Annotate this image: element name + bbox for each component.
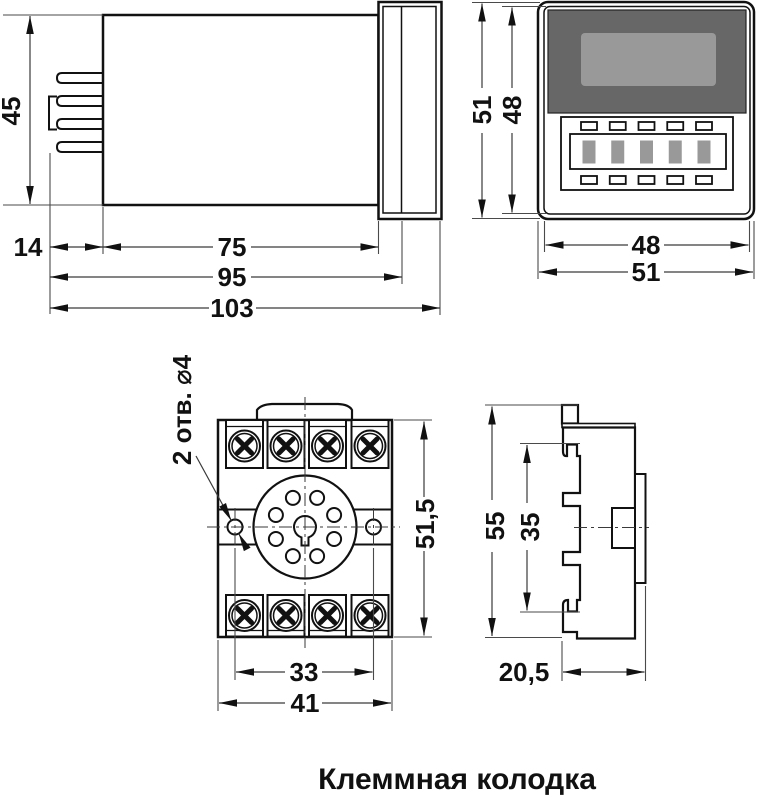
dim-relay-height: 45 <box>0 16 30 204</box>
dim-socket-side-height-label: 55 <box>480 512 510 541</box>
dimensional-drawing: 45 14 75 95 103 <box>0 0 758 800</box>
relay-front-view: 51 48 48 51 <box>467 2 754 287</box>
screw <box>355 431 386 462</box>
screw <box>271 431 302 462</box>
relay-spigot <box>49 97 57 130</box>
dim-front-inner-height: 48 <box>497 8 527 213</box>
dim-relay-front-label: 14 <box>14 232 43 262</box>
dim-socket-hole-span-label: 33 <box>290 657 319 687</box>
dim-front-inner-width: 48 <box>546 230 749 260</box>
relay-pins <box>57 73 103 152</box>
dim-socket-side-inner: 35 <box>515 445 545 611</box>
dim-relay-total-label: 103 <box>210 293 253 323</box>
dim-front-outer-height-label: 51 <box>467 96 497 125</box>
socket-side-top-tab <box>562 405 578 424</box>
dim-front-outer-width: 51 <box>539 257 753 287</box>
dim-relay-body-length: 75 <box>103 232 379 262</box>
relay-body <box>103 15 379 205</box>
dim-relay-front: 14 <box>14 232 103 262</box>
screw <box>355 600 386 631</box>
dim-relay-to-panel-label: 95 <box>218 262 247 292</box>
socket-side-view: 55 35 20,5 <box>480 405 649 687</box>
screw <box>229 431 260 462</box>
relay-bezel-outer <box>379 2 442 219</box>
screw <box>312 431 343 462</box>
dim-socket-side-depth-label: 20,5 <box>499 657 550 687</box>
dim-relay-height-label: 45 <box>0 97 26 126</box>
dim-socket-height: 51,5 <box>410 422 440 636</box>
dim-front-inner-width-label: 48 <box>632 230 661 260</box>
dim-socket-width: 41 <box>219 688 391 718</box>
dim-relay-total: 103 <box>50 293 440 323</box>
dim-front-inner-height-label: 48 <box>497 96 527 125</box>
screw <box>229 600 260 631</box>
drawing-caption: Клеммная колодка <box>318 763 596 796</box>
dim-socket-side-depth: 20,5 <box>499 657 645 687</box>
front-display-screen <box>581 33 716 86</box>
screw <box>271 600 302 631</box>
screw <box>312 600 343 631</box>
dim-relay-to-panel: 95 <box>50 262 402 292</box>
socket-side-latch-tab <box>635 474 646 583</box>
dim-socket-width-label: 41 <box>291 688 320 718</box>
dim-socket-side-inner-label: 35 <box>515 513 545 542</box>
dim-front-outer-width-label: 51 <box>632 257 661 287</box>
dim-relay-body-length-label: 75 <box>218 232 247 262</box>
relay-side-view: 45 14 75 95 103 <box>0 2 442 323</box>
socket-front-view: 2 отв. ⌀4 51,5 33 41 <box>167 354 440 718</box>
dim-socket-hole-span: 33 <box>236 657 373 687</box>
dim-socket-height-label: 51,5 <box>410 499 440 550</box>
dim-front-outer-height: 51 <box>467 4 497 218</box>
technical-drawing-page: 45 14 75 95 103 <box>0 0 758 800</box>
dim-socket-side-height: 55 <box>480 407 510 637</box>
hole-note-label: 2 отв. ⌀4 <box>167 354 197 465</box>
